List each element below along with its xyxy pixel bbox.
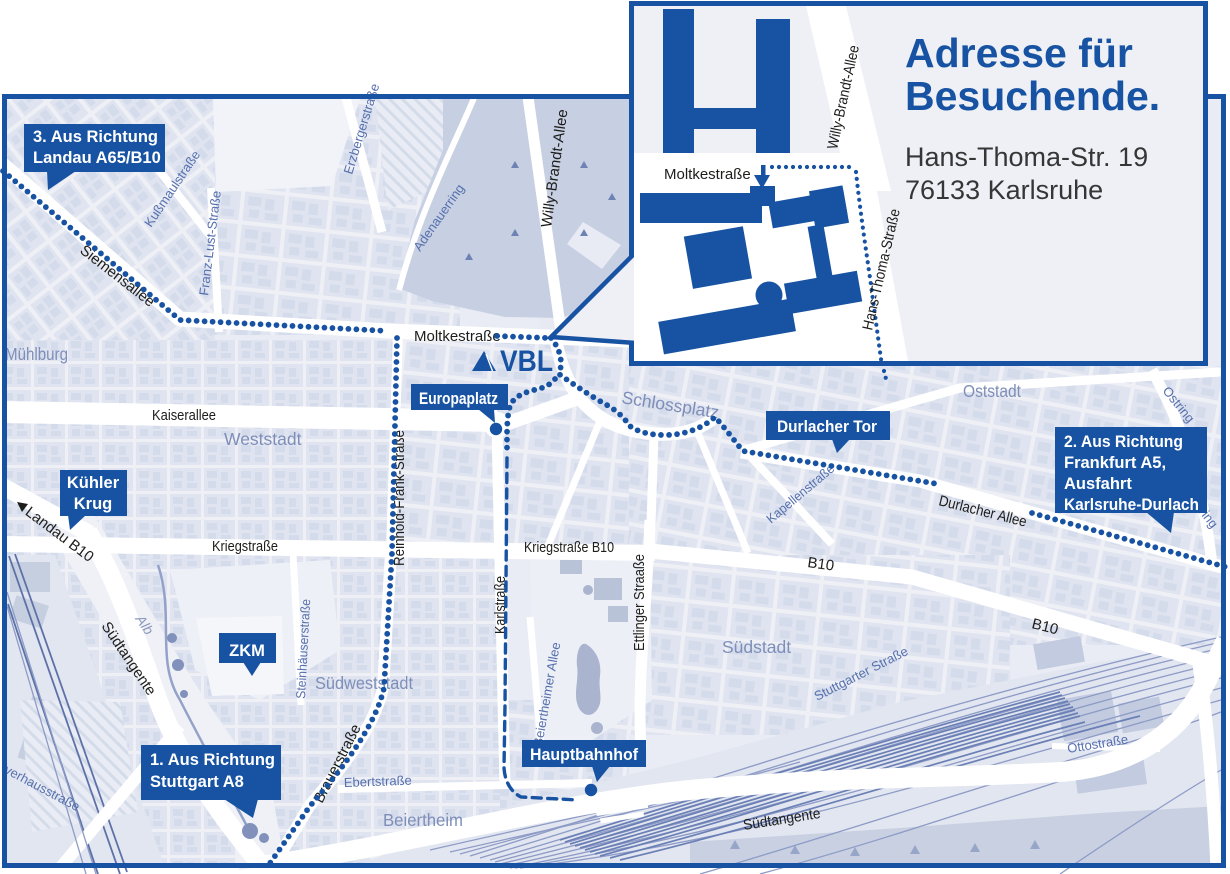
svg-text:Kriegstraße: Kriegstraße bbox=[212, 538, 278, 555]
svg-text:Moltkestraße: Moltkestraße bbox=[414, 328, 501, 345]
svg-text:Südweststadt: Südweststadt bbox=[315, 673, 413, 693]
svg-text:Adresse für: Adresse für bbox=[905, 30, 1133, 76]
svg-text:Besuchende.: Besuchende. bbox=[905, 73, 1160, 119]
svg-text:Hans-Thoma-Str. 19: Hans-Thoma-Str. 19 bbox=[905, 142, 1148, 172]
svg-text:2. Aus Richtung: 2. Aus Richtung bbox=[1064, 433, 1183, 451]
svg-text:76133 Karlsruhe: 76133 Karlsruhe bbox=[905, 175, 1103, 205]
svg-text:Ausfahrt: Ausfahrt bbox=[1064, 475, 1132, 493]
svg-text:3. Aus Richtung: 3. Aus Richtung bbox=[33, 128, 158, 146]
svg-text:Kriegstraße B10: Kriegstraße B10 bbox=[524, 539, 614, 556]
svg-text:Kühler: Kühler bbox=[67, 474, 120, 492]
svg-text:Oststadt: Oststadt bbox=[963, 381, 1021, 401]
svg-text:Moltkestraße: Moltkestraße bbox=[664, 166, 751, 183]
svg-text:Frankfurt A5,: Frankfurt A5, bbox=[1064, 454, 1166, 472]
svg-text:Südstadt: Südstadt bbox=[722, 637, 791, 657]
svg-text:Beiertheim: Beiertheim bbox=[383, 810, 463, 830]
svg-text:Krug: Krug bbox=[74, 495, 113, 513]
svg-text:Karlsruhe-Durlach: Karlsruhe-Durlach bbox=[1064, 496, 1199, 514]
svg-text:Ebertstraße: Ebertstraße bbox=[344, 773, 412, 790]
svg-text:Weststadt: Weststadt bbox=[224, 429, 302, 449]
svg-text:1. Aus Richtung: 1. Aus Richtung bbox=[150, 751, 275, 769]
svg-text:Mühlburg: Mühlburg bbox=[5, 344, 68, 364]
svg-text:VBL: VBL bbox=[500, 345, 553, 378]
svg-text:Durlacher Tor: Durlacher Tor bbox=[777, 418, 878, 436]
svg-text:Stuttgart A8: Stuttgart A8 bbox=[150, 773, 244, 791]
svg-text:Hauptbahnhof: Hauptbahnhof bbox=[530, 746, 638, 764]
svg-text:Ettlinger Straaße: Ettlinger Straaße bbox=[631, 554, 648, 651]
svg-text:Kaiserallee: Kaiserallee bbox=[152, 407, 216, 424]
svg-text:ZKM: ZKM bbox=[229, 642, 265, 660]
svg-text:Landau A65/B10: Landau A65/B10 bbox=[33, 149, 161, 167]
svg-text:Europaplatz: Europaplatz bbox=[419, 390, 498, 408]
